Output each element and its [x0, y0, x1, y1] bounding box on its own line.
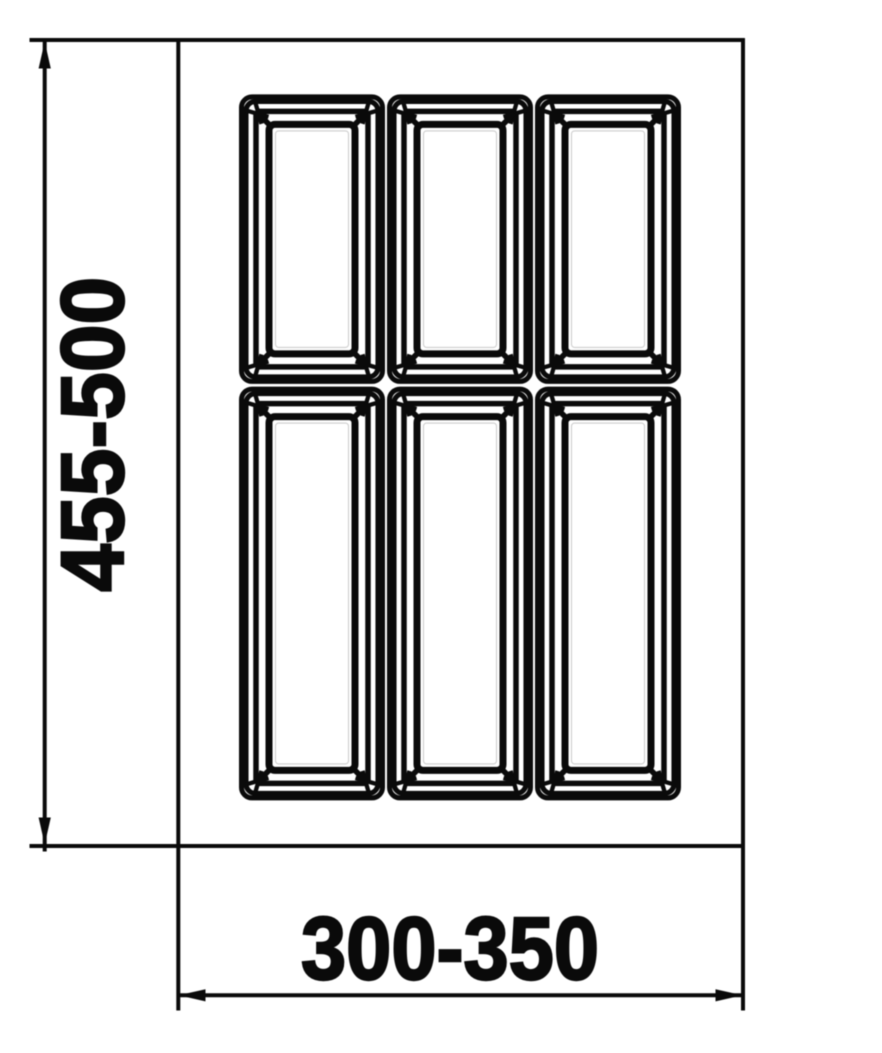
svg-text:455-500: 455-500 — [42, 277, 142, 592]
svg-text:300-350: 300-350 — [301, 898, 599, 998]
